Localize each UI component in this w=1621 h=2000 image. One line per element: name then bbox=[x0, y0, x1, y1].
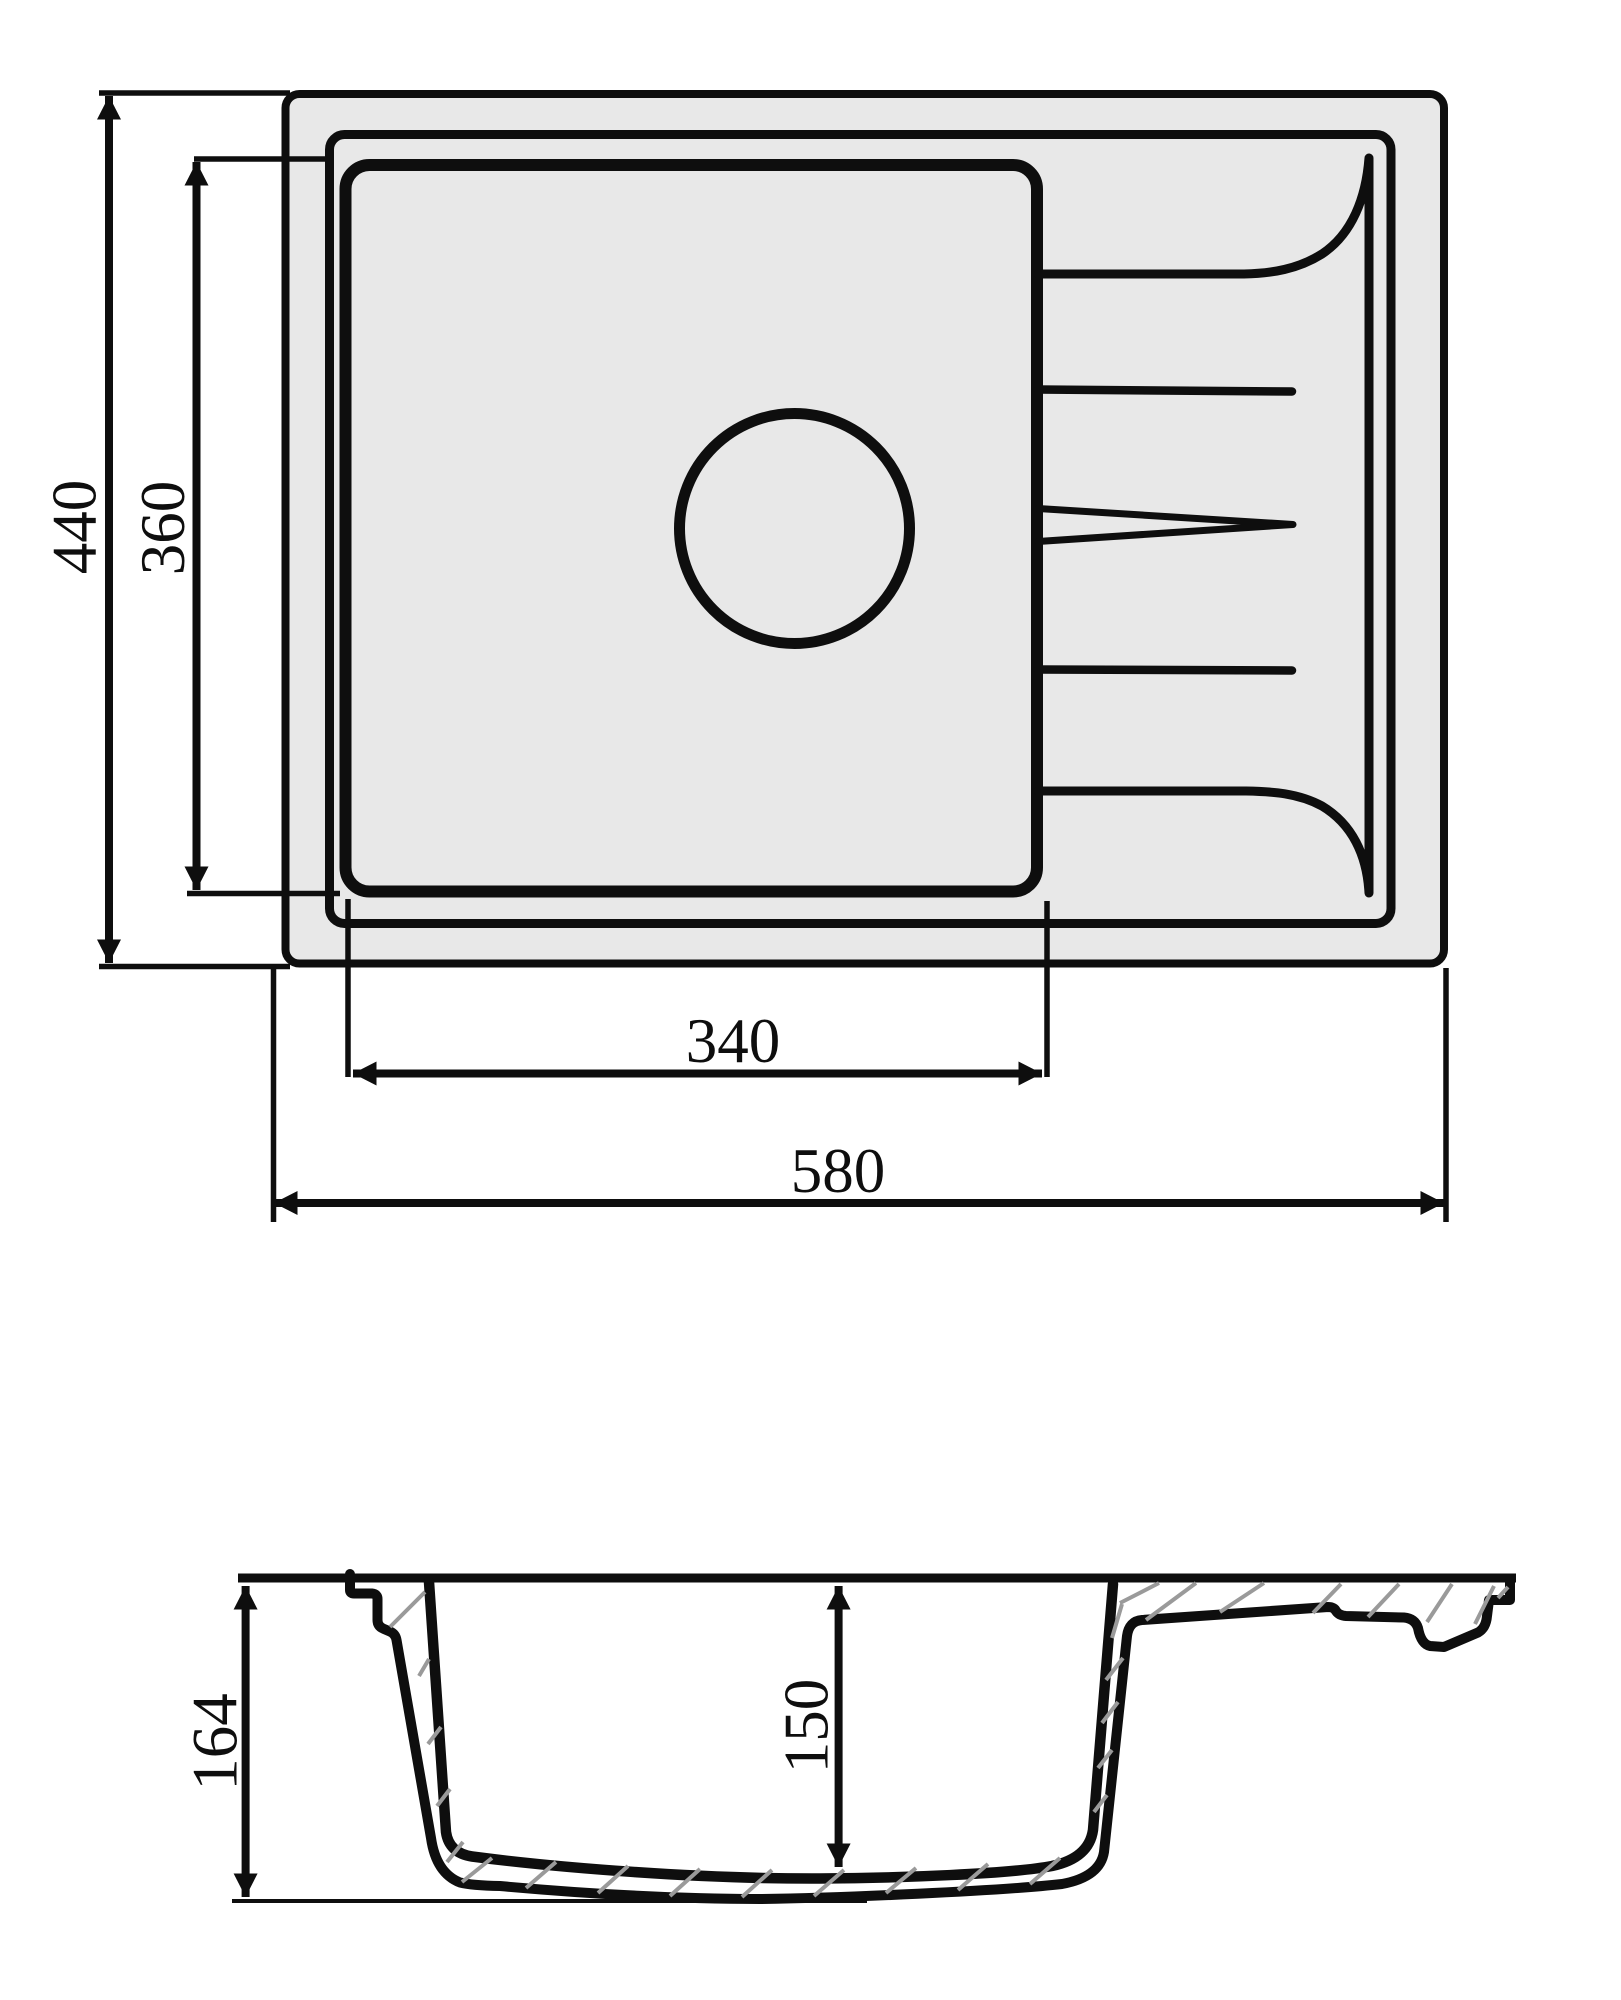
svg-text:150: 150 bbox=[772, 1679, 842, 1774]
svg-text:340: 340 bbox=[686, 1006, 781, 1076]
svg-text:580: 580 bbox=[791, 1136, 886, 1206]
svg-text:440: 440 bbox=[40, 480, 110, 575]
svg-text:360: 360 bbox=[128, 481, 198, 576]
svg-text:164: 164 bbox=[180, 1693, 252, 1791]
